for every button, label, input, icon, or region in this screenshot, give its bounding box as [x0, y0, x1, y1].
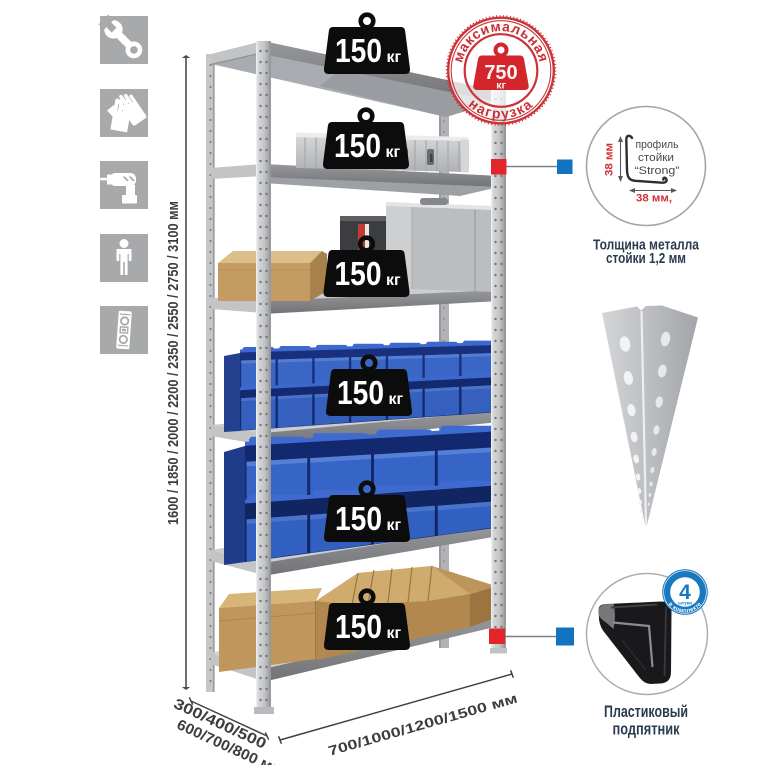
svg-text:стойки 1,2 мм: стойки 1,2 мм: [606, 251, 686, 267]
svg-text:кг: кг: [496, 80, 506, 92]
svg-text:38 мм: 38 мм: [604, 143, 616, 176]
svg-text:профиль: профиль: [636, 139, 679, 151]
svg-text:штуки: штуки: [678, 601, 692, 606]
svg-text:подпятник: подпятник: [613, 720, 680, 739]
svg-text:“Strong”: “Strong”: [635, 165, 680, 177]
svg-text:1600 / 1850 / 2000 / 2200 / 23: 1600 / 1850 / 2000 / 2200 / 2350 / 2550 …: [166, 201, 182, 525]
svg-text:Пластиковый: Пластиковый: [604, 702, 688, 721]
svg-text:38 мм,: 38 мм,: [636, 193, 672, 205]
svg-text:стойки: стойки: [638, 152, 674, 164]
